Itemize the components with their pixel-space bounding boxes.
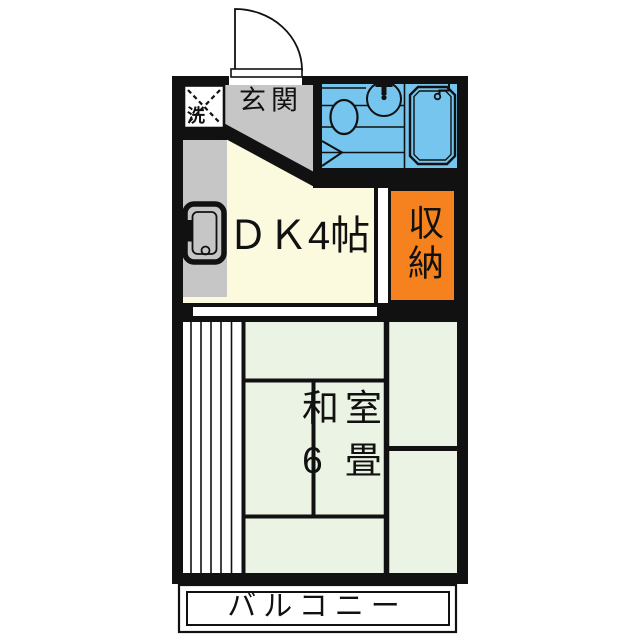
closet-door-panel bbox=[378, 188, 388, 303]
storage-label: 収納 bbox=[405, 204, 441, 284]
japanese-room-name: 和室 bbox=[302, 383, 388, 435]
entrance-door-threshold bbox=[231, 69, 302, 77]
floor-plan: 玄関 洗 ＤＫ4帖 収納 和室 6 畳 バルコニー bbox=[0, 0, 640, 640]
bathroom bbox=[322, 82, 457, 168]
sliding-door-slit bbox=[193, 307, 377, 316]
washbasin-drain bbox=[381, 95, 386, 100]
japanese-room-size: 6 畳 bbox=[302, 435, 388, 487]
bathtub-outer bbox=[410, 87, 455, 164]
wall-bottom bbox=[172, 573, 468, 584]
entrance-label: 玄関 bbox=[239, 88, 303, 115]
kitchen-faucet-handle bbox=[186, 220, 193, 242]
floor-plan-drawing bbox=[0, 0, 640, 640]
toilet bbox=[331, 100, 358, 134]
wall-right bbox=[457, 76, 468, 584]
closet-door-edge bbox=[374, 188, 378, 303]
wood-strip bbox=[183, 322, 244, 573]
dining-kitchen-label: ＤＫ4帖 bbox=[228, 216, 370, 256]
wall-top bbox=[172, 76, 468, 85]
washbasin-faucet-stem bbox=[382, 86, 387, 95]
balcony-label: バルコニー bbox=[227, 593, 406, 622]
kitchen-floor bbox=[183, 140, 227, 297]
wall-left bbox=[172, 76, 183, 584]
washer-space-label: 洗 bbox=[187, 107, 205, 125]
wall-bathroom-bottom bbox=[313, 168, 468, 188]
japanese-room-label: 和室 6 畳 bbox=[302, 383, 388, 487]
